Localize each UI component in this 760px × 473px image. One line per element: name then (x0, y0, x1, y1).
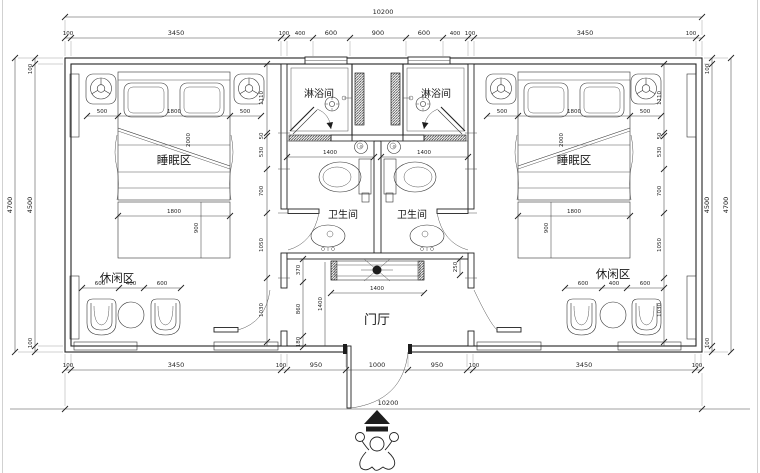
dim-leisL-2: 600 (157, 281, 168, 287)
dim-top-9: 3450 (577, 29, 594, 37)
dim-right-inner: 4500 (703, 197, 711, 214)
nightstand-speaker-icon (486, 74, 516, 104)
floor-plan-drawing: 10200 100 3450 100 400 600 900 600 400 1… (0, 0, 760, 473)
leisure-left (87, 299, 180, 335)
label-hall: 门厅 (364, 313, 390, 328)
dim-chainR-4: 1050 (657, 238, 663, 252)
label-leisure-left: 休闲区 (100, 271, 135, 285)
shower-rooms (289, 68, 466, 141)
dim-chainL-5: 1030 (259, 303, 265, 317)
dim-hall-counter-d: 250 (453, 261, 459, 272)
label-shower-left: 淋浴间 (304, 87, 334, 100)
dim-bedL-length: 2000 (186, 133, 192, 147)
dim-bot-4: 1000 (369, 361, 386, 369)
dim-top-6: 600 (418, 29, 430, 37)
dim-hall-counter: 1400 (370, 286, 384, 292)
dim-chainL-2: 530 (259, 146, 265, 157)
armchair-icon (151, 299, 180, 335)
dim-top-2: 100 (279, 31, 290, 37)
dim-left-inner: 4500 (26, 197, 34, 214)
leisure-right (567, 299, 661, 335)
dim-chainR-1: 50 (657, 132, 663, 139)
dim-benchR-w: 1800 (567, 209, 581, 215)
entry-hall (331, 259, 424, 408)
pipe-chase-right (391, 73, 400, 125)
dim-bedL-width: 1800 (167, 109, 181, 115)
entry-jamb-right (408, 344, 412, 354)
toilet-paper-holder-icon (388, 141, 401, 154)
label-toilet-right: 卫生间 (397, 208, 427, 221)
toilet-left (319, 159, 371, 194)
dim-top-5: 900 (372, 29, 384, 37)
armchair-icon (567, 299, 596, 335)
dim-bot-3: 950 (310, 361, 322, 369)
dim-leisR-0: 600 (578, 281, 589, 287)
dim-chainL-0: 1110 (259, 91, 265, 105)
dim-right-outer: 4700 (722, 197, 730, 214)
dim-hall-depth: 1400 (318, 297, 324, 311)
switch-box (362, 193, 369, 202)
dim-bot-7: 3450 (576, 361, 593, 369)
dim-chainR-0: 1110 (657, 91, 663, 105)
dim-left-cap-bottom: 100 (28, 337, 34, 348)
dim-left-outer: 4700 (6, 197, 14, 214)
label-toilet-left: 卫生间 (328, 208, 358, 221)
dim-top-8: 100 (465, 31, 476, 37)
dim-benchL-d: 900 (194, 222, 200, 233)
dim-chainR-2: 530 (657, 146, 663, 157)
side-table (118, 302, 144, 328)
bath-door-right (437, 209, 468, 250)
dim-top-overall: 10200 (373, 8, 394, 16)
dim-top-10: 100 (686, 31, 697, 37)
dim-bot-6: 100 (469, 363, 480, 369)
dim-hall-seg-mid: 860 (296, 303, 302, 314)
toilet-right (384, 159, 436, 194)
entrance-arrow-icon (364, 410, 390, 424)
shower-door-left (289, 107, 333, 141)
dim-top-7: 400 (450, 31, 461, 37)
dim-bathR-width: 1400 (417, 150, 431, 156)
dim-chainL-4: 1050 (259, 238, 265, 252)
dim-bot-5: 950 (431, 361, 443, 369)
shower-door-right (422, 107, 466, 141)
dim-benchR-d: 900 (544, 222, 550, 233)
dim-bedL-side2: 500 (240, 109, 251, 115)
dim-chainR-5: 1030 (657, 303, 663, 317)
armchair-icon (87, 299, 116, 335)
dim-top-0: 100 (63, 31, 74, 37)
dim-right-cap-top: 100 (705, 63, 711, 74)
label-sleep-right: 睡眠区 (557, 153, 592, 167)
nightstand-speaker-icon (86, 74, 116, 104)
entrance-marker (356, 410, 399, 470)
dim-bedL-side1: 500 (97, 109, 108, 115)
dim-chainR-3: 700 (657, 185, 663, 196)
basin-left (311, 225, 345, 251)
shower-mixer-icon (342, 96, 413, 100)
dim-right-cap-bottom: 100 (705, 337, 711, 348)
dim-bot-1: 3450 (168, 361, 185, 369)
basin-right (410, 225, 444, 251)
dim-bot-8: 100 (692, 363, 703, 369)
label-shower-right: 淋浴间 (421, 87, 451, 100)
room-labels: 淋浴间 淋浴间 卫生间 卫生间 睡眠区 睡眠区 休闲区 休闲区 门厅 (100, 87, 631, 328)
label-sleep-left: 睡眠区 (157, 153, 192, 167)
dim-bedR-side2: 500 (640, 109, 651, 115)
pipe-chase-left (355, 73, 364, 125)
dim-bottom-overall: 10200 (378, 399, 399, 407)
side-table (600, 302, 626, 328)
dim-leisR-2: 600 (640, 281, 651, 287)
entry-jamb-left (343, 344, 347, 354)
dim-bot-2: 100 (276, 363, 287, 369)
dim-chainL-1: 50 (259, 132, 265, 139)
dim-top-1: 3450 (168, 29, 185, 37)
dim-chainL-3: 700 (259, 185, 265, 196)
switch-box (386, 193, 393, 202)
dim-top-3: 400 (295, 31, 306, 37)
dim-left-cap-top: 100 (28, 63, 34, 74)
dim-bedR-width: 1800 (567, 109, 581, 115)
dim-benchL-w: 1800 (167, 209, 181, 215)
dim-bot-0: 100 (63, 363, 74, 369)
dim-bathL-width: 1400 (323, 150, 337, 156)
dim-top-4: 600 (325, 29, 337, 37)
floor-plan-page: 10200 100 3450 100 400 600 900 600 400 1… (0, 0, 760, 473)
person-icon (356, 433, 399, 471)
label-leisure-right: 休闲区 (596, 267, 631, 281)
right-room-door (474, 290, 521, 332)
walls (65, 58, 702, 354)
dim-bedR-side1: 500 (497, 109, 508, 115)
dim-leisR-1: 400 (609, 281, 620, 287)
ceiling-fan-icon (361, 259, 393, 281)
dim-bedR-length: 2000 (559, 133, 565, 147)
toilet-paper-holder-icon (355, 141, 368, 154)
dim-hall-seg-bot: 180 (296, 336, 302, 347)
dim-hall-seg-top: 370 (296, 264, 302, 275)
